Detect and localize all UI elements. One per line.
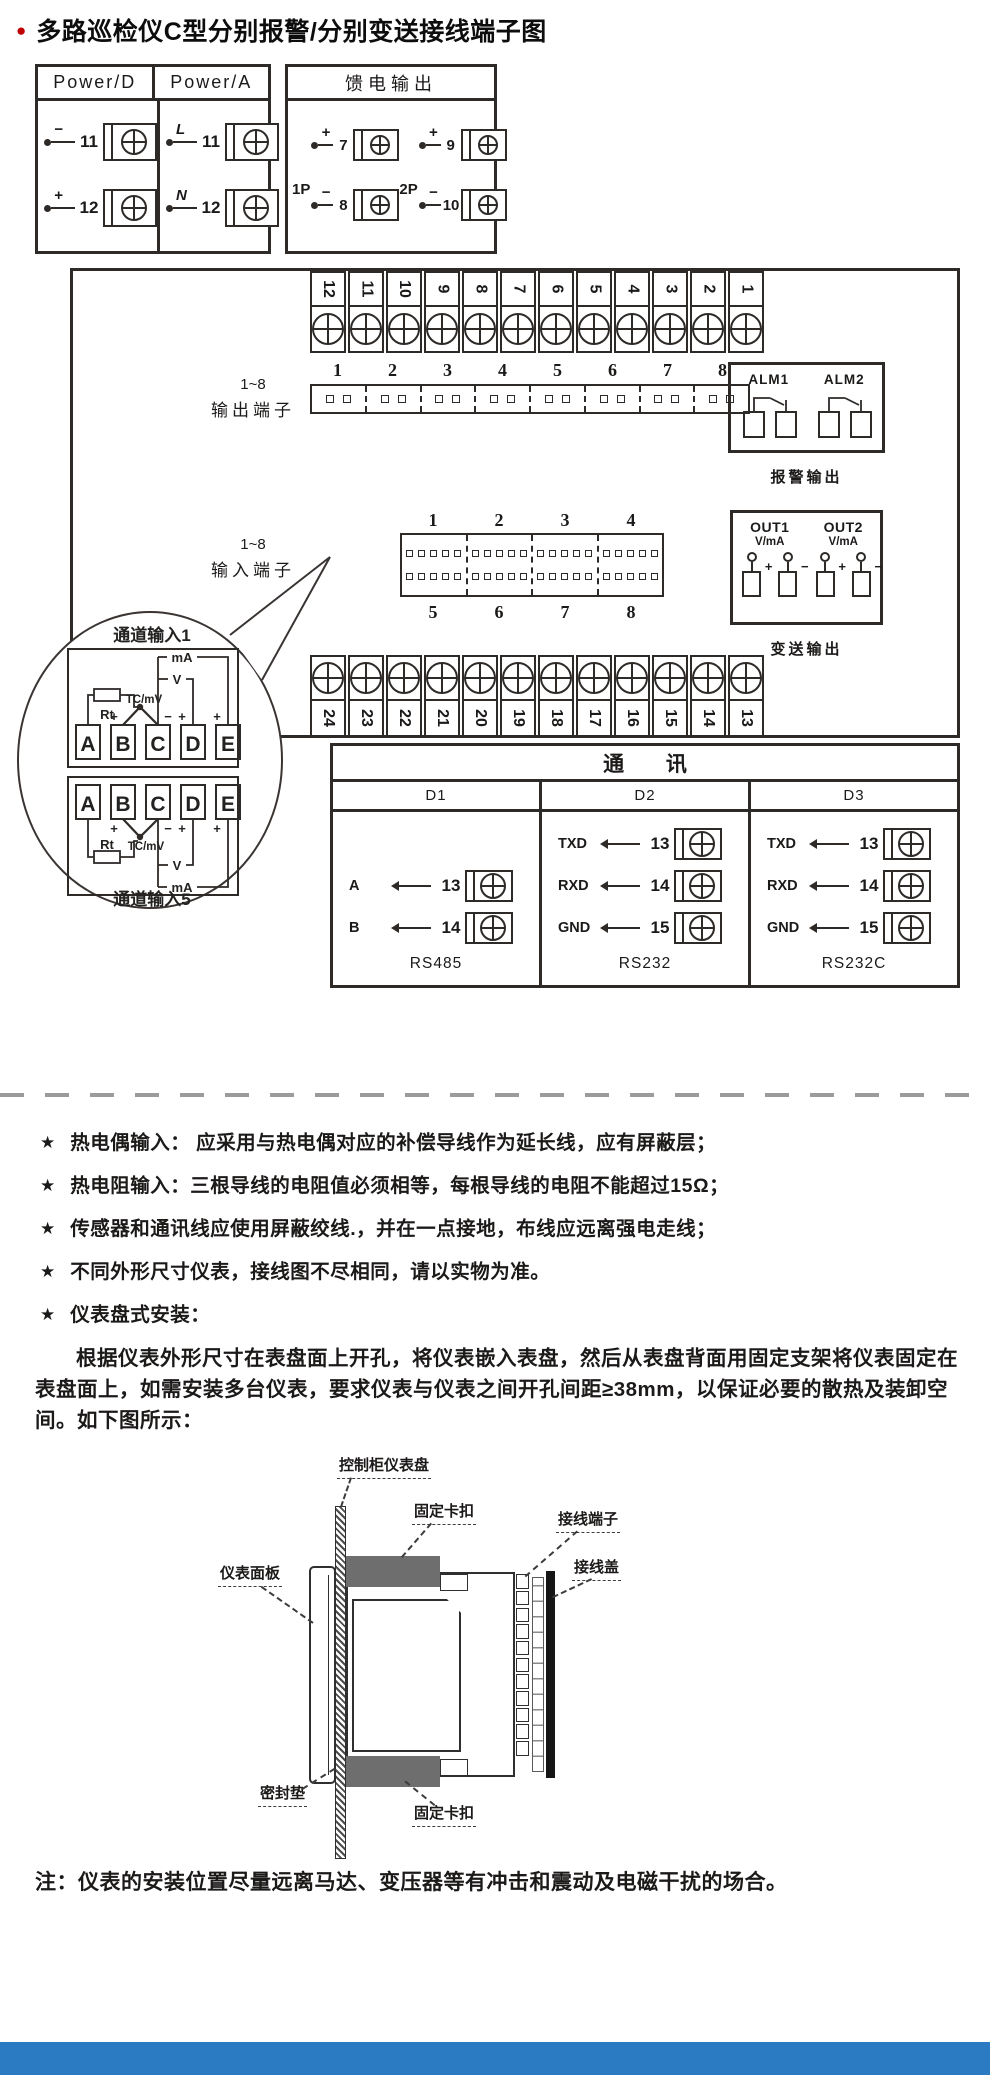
screw-terminal-icon bbox=[502, 662, 534, 694]
terminal-cell: 17 bbox=[576, 655, 612, 737]
pin-icon bbox=[442, 573, 449, 580]
polarity-sign: + bbox=[213, 709, 221, 724]
out-terminal: − bbox=[852, 552, 871, 597]
ring-terminal-icon bbox=[783, 552, 793, 562]
screw-terminal-icon bbox=[353, 129, 399, 161]
pin-icon bbox=[326, 395, 334, 403]
pin-icon bbox=[520, 550, 527, 557]
terminal-number: 5 bbox=[585, 285, 603, 294]
terminal-letter: E bbox=[221, 793, 235, 816]
label-seal: 密封垫 bbox=[258, 1782, 307, 1807]
pin-icon bbox=[545, 395, 553, 403]
screw-terminal-icon bbox=[540, 662, 572, 694]
polarity-sign: − bbox=[54, 121, 63, 138]
pin-icon bbox=[508, 573, 515, 580]
terminal-number: 7 bbox=[532, 602, 598, 623]
star-icon: ★ bbox=[40, 1216, 55, 1242]
screw-terminal-icon bbox=[578, 662, 610, 694]
v-label: V bbox=[173, 858, 182, 873]
terminal-letter: A bbox=[80, 733, 95, 756]
out-unit-label: V/mA bbox=[742, 536, 797, 548]
terminal-number: 7 bbox=[640, 360, 695, 381]
screw-terminal-icon bbox=[103, 123, 157, 161]
screw-terminal-icon bbox=[225, 189, 279, 227]
pin-icon bbox=[573, 550, 580, 557]
screw-terminal-icon bbox=[730, 313, 762, 345]
out-terminal: + bbox=[816, 552, 835, 597]
comm-col-header: D3 bbox=[748, 782, 957, 809]
terminal-block-icon bbox=[516, 1691, 529, 1706]
power-d-column: − 11 + 12 bbox=[38, 101, 157, 251]
terminal-letter: B bbox=[115, 793, 130, 816]
terminal-letter: B bbox=[115, 733, 130, 756]
notes-list: ★热电偶输入： 应采用与热电偶对应的补偿导线作为延长线，应有屏蔽层；★热电阻输入… bbox=[40, 1130, 960, 1345]
star-icon: ★ bbox=[40, 1173, 55, 1199]
tc-label: TC/mV bbox=[126, 694, 163, 706]
note-item: ★热电偶输入： 应采用与热电偶对应的补偿导线作为延长线，应有屏蔽层； bbox=[40, 1130, 960, 1156]
screw-terminal-icon bbox=[692, 313, 724, 345]
terminal-block-icon bbox=[516, 1658, 529, 1673]
wire-dot bbox=[44, 205, 51, 212]
leader-line bbox=[552, 1578, 592, 1598]
note-text: 热电偶输入： 应采用与热电偶对应的补偿导线作为延长线，应有屏蔽层； bbox=[70, 1130, 716, 1156]
pin-icon bbox=[442, 550, 449, 557]
terminal-number: 8 bbox=[471, 285, 489, 294]
pin-icon bbox=[651, 573, 658, 580]
terminal-number: 13 bbox=[737, 709, 755, 727]
polarity-sign: + bbox=[110, 821, 118, 836]
out-unit: OUT2 V/mA + − bbox=[816, 519, 871, 622]
clip-slot bbox=[440, 1759, 468, 1776]
pin-icon bbox=[639, 573, 646, 580]
terminal-row: L 11 bbox=[166, 123, 279, 161]
pin-icon bbox=[561, 573, 568, 580]
terminal-cell: 19 bbox=[500, 655, 536, 737]
out-terminal: − bbox=[778, 552, 797, 597]
polarity-sign: − bbox=[164, 821, 172, 836]
out-label: OUT2 bbox=[816, 519, 871, 535]
polarity-sign: + bbox=[178, 821, 186, 836]
dashed-separator bbox=[0, 1093, 990, 1097]
terminal-number: 3 bbox=[532, 510, 598, 531]
terminal-number: 6 bbox=[585, 360, 640, 381]
alarm-caption: 报警输出 bbox=[728, 466, 885, 487]
terminal-number: 8 bbox=[335, 197, 351, 214]
screw-terminal-icon bbox=[350, 313, 382, 345]
comm-row: B 14 bbox=[349, 912, 539, 944]
wire-dot bbox=[44, 139, 51, 146]
comm-col-header: D1 bbox=[333, 782, 539, 809]
signal-label: GND bbox=[558, 920, 602, 936]
arrow-left-icon bbox=[393, 885, 431, 887]
terminal-letter: A bbox=[80, 793, 95, 816]
terminal-number: 13 bbox=[857, 834, 881, 854]
screw-terminal-icon bbox=[674, 870, 722, 902]
feed-output-header: 馈电输出 bbox=[288, 67, 494, 101]
comm-row: TXD 13 bbox=[767, 828, 957, 860]
feed-group-2p: 2P + 9 − 10 bbox=[399, 101, 507, 251]
document-page: ● 多路巡检仪C型分别报警/分别变送接线端子图 Power/D Power/A … bbox=[0, 0, 990, 2075]
comm-row: GND 15 bbox=[558, 912, 748, 944]
note-text: 不同外形尺寸仪表，接线图不尽相同，请以实物为准。 bbox=[70, 1259, 550, 1285]
terminal-number: 17 bbox=[585, 709, 603, 727]
terminal-number: 4 bbox=[598, 510, 664, 531]
ring-terminal-icon bbox=[856, 552, 866, 562]
terminal-block-icon bbox=[516, 1674, 529, 1689]
leader-line bbox=[401, 1523, 432, 1558]
signal-label: TXD bbox=[767, 836, 811, 852]
polarity-sign: − bbox=[164, 709, 172, 724]
note-item: ★传感器和通讯线应使用屏蔽绞线.，并在一点接地，布线应远离强电走线； bbox=[40, 1216, 960, 1242]
power-d-header: Power/D bbox=[38, 67, 152, 98]
comm-standard-label: RS485 bbox=[333, 955, 539, 973]
pin-icon bbox=[561, 550, 568, 557]
terminal-number: 4 bbox=[475, 360, 530, 381]
terminal-number: 11 bbox=[79, 132, 99, 152]
terminal-number: 8 bbox=[598, 602, 664, 623]
top-terminal-strip: 121110987654321 bbox=[310, 271, 770, 355]
terminal-number: 16 bbox=[623, 709, 641, 727]
leader-line bbox=[261, 1586, 314, 1624]
terminal-number: 2 bbox=[699, 285, 717, 294]
feed-output-box: 馈电输出 1P + 7 − 8 2P bbox=[285, 64, 497, 254]
screw-terminal-icon bbox=[502, 313, 534, 345]
terminal-number: 7 bbox=[335, 137, 351, 154]
page-title: 多路巡检仪C型分别报警/分别变送接线端子图 bbox=[36, 12, 547, 48]
pin-icon bbox=[639, 550, 646, 557]
terminal-cell: 3 bbox=[652, 271, 688, 353]
star-icon: ★ bbox=[40, 1302, 55, 1328]
terminal-number: 5 bbox=[530, 360, 585, 381]
pin-icon bbox=[430, 573, 437, 580]
screw-terminal-icon bbox=[353, 189, 399, 221]
screw-terminal-icon bbox=[616, 313, 648, 345]
pin-icon bbox=[398, 395, 406, 403]
power-a-column: L 11 N 12 bbox=[157, 101, 279, 251]
terminal-number: 3 bbox=[661, 285, 679, 294]
terminal-cell: 2 bbox=[690, 271, 726, 353]
terminal-number: 3 bbox=[420, 360, 475, 381]
polarity-sign: + bbox=[213, 821, 221, 836]
terminal-number: 9 bbox=[443, 137, 459, 154]
terminal-cell: 15 bbox=[652, 655, 688, 737]
input-numbers-top: 1234 bbox=[400, 510, 664, 531]
signal-label: A bbox=[349, 878, 393, 894]
label-clip-top: 固定卡扣 bbox=[412, 1500, 476, 1525]
pin-icon bbox=[603, 550, 610, 557]
terminal-cell: 10 bbox=[386, 271, 422, 353]
terminal-cell: 1 bbox=[728, 271, 764, 353]
footer-bar bbox=[0, 2042, 990, 2075]
transmit-output-box: OUT1 V/mA + − OUT2 V/mA + − bbox=[730, 510, 883, 625]
pin-icon bbox=[549, 573, 556, 580]
terminal-block-icon bbox=[516, 1708, 529, 1723]
terminal-cell: 5 bbox=[576, 271, 612, 353]
signal-label: GND bbox=[767, 920, 811, 936]
terminal-row: + 9 bbox=[419, 129, 508, 161]
pin-icon bbox=[452, 395, 460, 403]
terminal-letter: E bbox=[221, 733, 235, 756]
pin-icon bbox=[615, 550, 622, 557]
terminal-row: + 7 bbox=[311, 129, 399, 161]
front-panel bbox=[309, 1566, 336, 1784]
screw-terminal-icon bbox=[464, 313, 496, 345]
alarm-label: ALM1 bbox=[748, 372, 789, 387]
terminal-strip-side bbox=[532, 1577, 544, 1772]
channel-1-label: 通道输入1 bbox=[113, 625, 190, 645]
terminal-row: + 12 bbox=[44, 189, 157, 227]
wire-dot bbox=[166, 139, 173, 146]
screw-terminal-icon bbox=[674, 828, 722, 860]
polarity-sign: − bbox=[321, 184, 330, 201]
terminal-number: 10 bbox=[395, 280, 413, 298]
polarity-sign: + bbox=[110, 709, 118, 724]
pin-icon bbox=[537, 573, 544, 580]
screw-terminal-icon bbox=[461, 189, 507, 221]
polarity-sign: + bbox=[838, 559, 846, 574]
arrow-left-icon bbox=[811, 927, 849, 929]
terminal-letter: C bbox=[150, 733, 165, 756]
terminal-row: − 8 bbox=[311, 189, 399, 221]
screw-terminal-icon bbox=[103, 189, 157, 227]
screw-terminal-icon bbox=[616, 662, 648, 694]
output-numbers-row: 12345678 bbox=[310, 360, 750, 381]
polarity-sign: + bbox=[54, 187, 63, 204]
input-terminal-strip bbox=[400, 533, 664, 597]
pin-icon bbox=[549, 550, 556, 557]
terminal-number: 2 bbox=[466, 510, 532, 531]
group-name: 2P bbox=[399, 181, 417, 198]
terminal-block-icon bbox=[516, 1591, 529, 1606]
terminal-number: 15 bbox=[661, 709, 679, 727]
label-text: 输出端子 bbox=[198, 396, 308, 421]
pin-cell bbox=[639, 386, 694, 412]
terminal-block-icon bbox=[516, 1624, 529, 1639]
power-terminal-box: Power/D Power/A − 11 + 12 bbox=[35, 64, 271, 254]
label-terminal: 接线端子 bbox=[556, 1508, 620, 1533]
screw-terminal-icon bbox=[578, 313, 610, 345]
pin-icon bbox=[603, 573, 610, 580]
screw-terminal-icon bbox=[465, 870, 513, 902]
pin-icon bbox=[537, 550, 544, 557]
pin-icon bbox=[627, 573, 634, 580]
comm-standard-label: RS232 bbox=[542, 955, 748, 973]
terminal-cell: 9 bbox=[424, 271, 460, 353]
screw-terminal-icon bbox=[388, 313, 420, 345]
pin-icon bbox=[617, 395, 625, 403]
terminal-cell: 12 bbox=[310, 271, 346, 353]
tc-label: TC/mV bbox=[128, 841, 165, 853]
pin-icon bbox=[654, 395, 662, 403]
terminal-number: 14 bbox=[648, 876, 672, 896]
terminal-number: 14 bbox=[699, 709, 717, 727]
pin-icon bbox=[381, 395, 389, 403]
star-icon: ★ bbox=[40, 1130, 55, 1156]
signal-label: RXD bbox=[558, 878, 602, 894]
pin-cell bbox=[531, 535, 597, 595]
terminal-number: 9 bbox=[433, 285, 451, 294]
terminal-number: 1 bbox=[737, 285, 755, 294]
pin-icon bbox=[627, 550, 634, 557]
terminal-number: 15 bbox=[857, 918, 881, 938]
note-text: 热电阻输入：三根导线的电阻值必须相等，每根导线的电阻不能超过15Ω； bbox=[70, 1173, 729, 1199]
terminal-row: N 12 bbox=[166, 189, 279, 227]
terminal-number: 13 bbox=[439, 876, 463, 896]
screw-terminal-icon bbox=[312, 313, 344, 345]
out-label: OUT1 bbox=[742, 519, 797, 535]
terminal-block-icon bbox=[516, 1741, 529, 1756]
screw-terminal-icon bbox=[883, 828, 931, 860]
pin-icon bbox=[484, 573, 491, 580]
comm-standard-label: RS232C bbox=[751, 955, 957, 973]
note-text: 传感器和通讯线应使用屏蔽绞线.，并在一点接地，布线应远离强电走线； bbox=[70, 1216, 716, 1242]
range-label: 1~8 bbox=[198, 376, 308, 393]
pin-icon bbox=[472, 550, 479, 557]
terminal-row: − 11 bbox=[44, 123, 157, 161]
terminal-number: 11 bbox=[201, 132, 221, 152]
alarm-unit: ALM1 bbox=[738, 372, 800, 450]
alarm-output-box: ALM1 ALM2 bbox=[728, 362, 885, 453]
pin-cell bbox=[466, 535, 532, 595]
screw-terminal-icon bbox=[461, 129, 507, 161]
input-numbers-bottom: 5678 bbox=[400, 602, 664, 623]
terminal-cell: 18 bbox=[538, 655, 574, 737]
pin-icon bbox=[520, 573, 527, 580]
pin-icon bbox=[490, 395, 498, 403]
terminal-number: 15 bbox=[648, 918, 672, 938]
terminal-number: 11 bbox=[357, 281, 375, 298]
pin-icon bbox=[454, 550, 461, 557]
arrow-left-icon bbox=[602, 885, 640, 887]
comm-title: 通 讯 bbox=[333, 746, 957, 782]
pin-icon bbox=[508, 550, 515, 557]
pin-icon bbox=[430, 550, 437, 557]
install-paragraph: 根据仪表外形尺寸在表盘面上开孔，将仪表嵌入表盘，然后从表盘背面用固定支架将仪表固… bbox=[35, 1343, 960, 1436]
terminal-block-icon bbox=[516, 1574, 529, 1589]
terminal-number: 1 bbox=[400, 510, 466, 531]
ring-terminal-icon bbox=[820, 552, 830, 562]
panel-cutout bbox=[335, 1506, 346, 1859]
screw-terminal-icon bbox=[883, 912, 931, 944]
pin-icon bbox=[709, 395, 717, 403]
label-clip-bottom: 固定卡扣 bbox=[412, 1802, 476, 1827]
terminal-number: 20 bbox=[471, 709, 489, 727]
terminal-cell: 6 bbox=[538, 271, 574, 353]
polarity-sign: − bbox=[801, 559, 809, 574]
channel-5-label: 通道输入5 bbox=[113, 889, 190, 909]
screw-terminal-icon bbox=[426, 313, 458, 345]
screw-terminal-icon bbox=[540, 313, 572, 345]
comm-row: TXD 13 bbox=[558, 828, 748, 860]
power-a-header: Power/A bbox=[152, 67, 269, 98]
rt-label: Rt bbox=[100, 837, 114, 852]
terminal-block-icon bbox=[516, 1724, 529, 1739]
out-unit: OUT1 V/mA + − bbox=[742, 519, 797, 622]
ring-terminal-icon bbox=[747, 552, 757, 562]
alarm-unit: ALM2 bbox=[813, 372, 875, 450]
polarity-sign: + bbox=[429, 124, 438, 141]
comm-column-d1: A 13 B 14 RS485 bbox=[333, 812, 539, 985]
polarity-sign: L bbox=[176, 121, 185, 138]
screw-terminal-icon bbox=[674, 912, 722, 944]
comm-column-d2: TXD 13 RXD 14 GND 15 RS232 bbox=[539, 812, 748, 985]
terminal-cell: 4 bbox=[614, 271, 650, 353]
note-item: ★热电阻输入：三根导线的电阻值必须相等，每根导线的电阻不能超过15Ω； bbox=[40, 1173, 960, 1199]
signal-label: RXD bbox=[767, 878, 811, 894]
pin-cell bbox=[584, 386, 639, 412]
pin-cell bbox=[474, 386, 529, 412]
pin-icon bbox=[615, 573, 622, 580]
terminal-number: 12 bbox=[319, 280, 337, 298]
polarity-sign: − bbox=[874, 559, 882, 574]
page-title-row: ● 多路巡检仪C型分别报警/分别变送接线端子图 bbox=[16, 12, 547, 48]
terminal-number: 19 bbox=[509, 709, 527, 727]
terminal-number: 1 bbox=[310, 360, 365, 381]
terminal-block-icon bbox=[516, 1641, 529, 1656]
label-front: 仪表面板 bbox=[218, 1562, 282, 1587]
wire-dot bbox=[166, 205, 173, 212]
pin-cell bbox=[597, 535, 663, 595]
pin-icon bbox=[496, 573, 503, 580]
screw-terminal-icon bbox=[654, 662, 686, 694]
signal-label: B bbox=[349, 920, 393, 936]
screw-terminal-icon bbox=[225, 123, 279, 161]
arrow-left-icon bbox=[602, 927, 640, 929]
pin-icon bbox=[671, 395, 679, 403]
screw-terminal-icon bbox=[465, 912, 513, 944]
leader-line bbox=[340, 1477, 352, 1507]
pin-icon bbox=[343, 395, 351, 403]
polarity-sign: − bbox=[429, 184, 438, 201]
arrow-left-icon bbox=[811, 843, 849, 845]
pin-cell bbox=[312, 386, 365, 412]
comm-table: 通 讯 D1 D2 D3 A 13 B 14 RS485 bbox=[330, 743, 960, 988]
relay-contact-icon bbox=[738, 387, 800, 439]
v-label: V bbox=[173, 672, 182, 687]
fixing-clip-top bbox=[346, 1556, 440, 1587]
polarity-sign: N bbox=[176, 187, 187, 204]
terminal-number: 4 bbox=[623, 285, 641, 294]
terminal-number: 10 bbox=[443, 197, 460, 214]
terminal-cell: 14 bbox=[690, 655, 726, 737]
screw-terminal-icon bbox=[730, 662, 762, 694]
terminal-letter: C bbox=[150, 793, 165, 816]
terminal-cell: 7 bbox=[500, 271, 536, 353]
pin-cell bbox=[365, 386, 420, 412]
group-name: 1P bbox=[292, 181, 310, 198]
output-terminals-label: 1~8 输出端子 bbox=[198, 376, 308, 421]
pin-cell bbox=[420, 386, 475, 412]
screw-terminal-icon bbox=[692, 662, 724, 694]
terminal-letter: D bbox=[185, 793, 200, 816]
instrument-screen bbox=[352, 1599, 461, 1752]
pin-icon bbox=[454, 573, 461, 580]
terminal-row: − 10 bbox=[419, 189, 508, 221]
polarity-sign: + bbox=[321, 124, 330, 141]
alarm-label: ALM2 bbox=[824, 372, 865, 387]
pin-icon bbox=[585, 550, 592, 557]
terminal-cover-bar bbox=[546, 1571, 555, 1778]
note-item: ★仪表盘式安装： bbox=[40, 1302, 960, 1328]
pin-icon bbox=[651, 550, 658, 557]
comm-row: RXD 14 bbox=[558, 870, 748, 902]
polarity-sign: + bbox=[178, 709, 186, 724]
terminal-number: 14 bbox=[857, 876, 881, 896]
terminal-number: 18 bbox=[547, 709, 565, 727]
screw-terminal-icon bbox=[654, 313, 686, 345]
terminal-cell: 20 bbox=[462, 655, 498, 737]
out-unit-label: V/mA bbox=[816, 536, 871, 548]
